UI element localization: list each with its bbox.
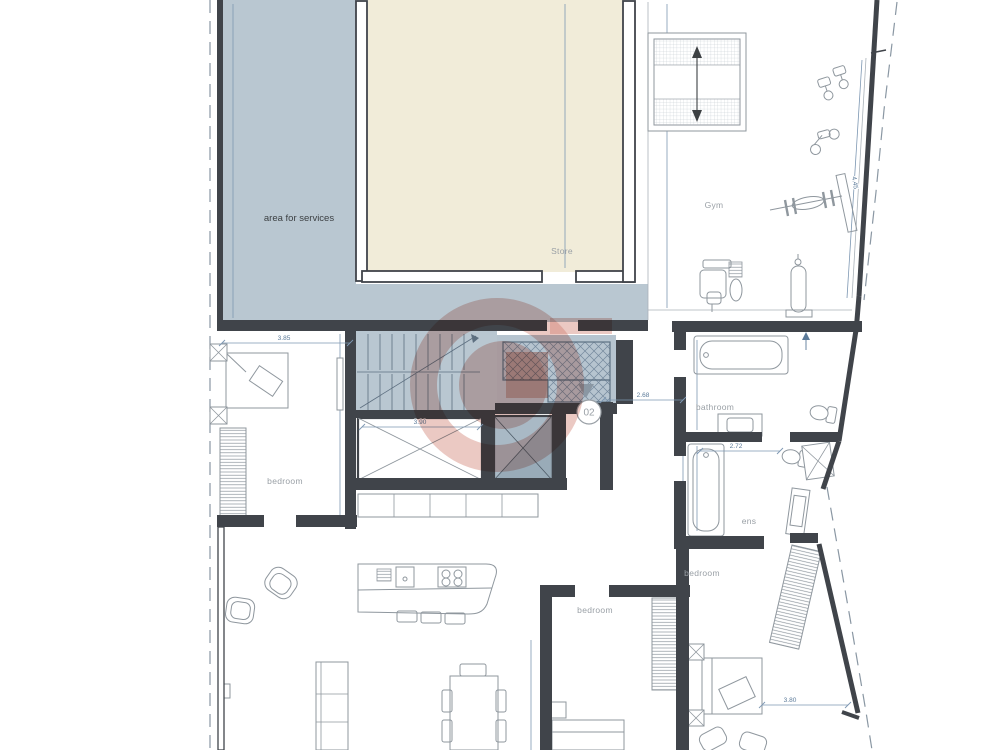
dim-gym-wall: 4.45 [850,176,859,190]
label-ensuite: ens [742,516,757,526]
label-bedroom-left: bedroom [267,476,303,486]
wall-dimension-arrow [802,332,810,350]
wardrobe-left [220,428,246,516]
wardrobe-middle [652,598,679,690]
seated-machine [700,260,742,312]
weight-bench [770,190,842,216]
unit-number: 02 [583,408,595,419]
wardrobe-right [770,545,822,649]
armchair [261,564,300,603]
shelf-unit [316,662,348,750]
dim-bedroom-left: 3.85 [278,335,291,342]
kitchen-tall-units [358,494,538,517]
label-bathroom: bathroom [696,402,734,412]
armchair [697,725,728,750]
toilet-icon [809,403,837,423]
bathtub-icon [694,336,788,374]
nightstand-marker [688,644,704,660]
label-gym: Gym [705,200,724,210]
column-marker [210,344,227,361]
label-area-for-services: area for services [264,213,334,224]
gym-skylight [648,33,746,131]
vanity-bench [786,488,810,536]
floorplan-canvas: 02 3.85 3.90 2.68 2.72 3.80 4.45 area fo… [0,0,1000,750]
dim-bedroom-right: 3.80 [784,697,797,704]
label-bedroom-middle: bedroom [577,605,613,615]
armchair [224,596,255,625]
bed-middle [548,702,624,750]
floorplan-svg: 02 3.85 3.90 2.68 2.72 3.80 4.45 area fo… [0,0,1000,750]
bed-left [226,353,288,408]
bathtub-icon [688,444,724,536]
store-region [368,0,624,272]
armchair [738,730,768,750]
kitchen-island [358,564,496,624]
elliptical-machine [815,65,852,101]
door-leaf [337,358,343,410]
dim-hall: 2.68 [637,392,650,399]
dim-ensuite: 2.72 [730,443,743,450]
exercise-bike [807,127,843,156]
bed-right [702,658,762,714]
nightstand-marker [688,710,704,726]
label-store: Store [551,246,573,256]
column-marker [210,407,227,424]
label-bedroom-right: bedroom [684,568,720,578]
punching-bag [786,254,812,317]
dining-table [442,664,506,750]
